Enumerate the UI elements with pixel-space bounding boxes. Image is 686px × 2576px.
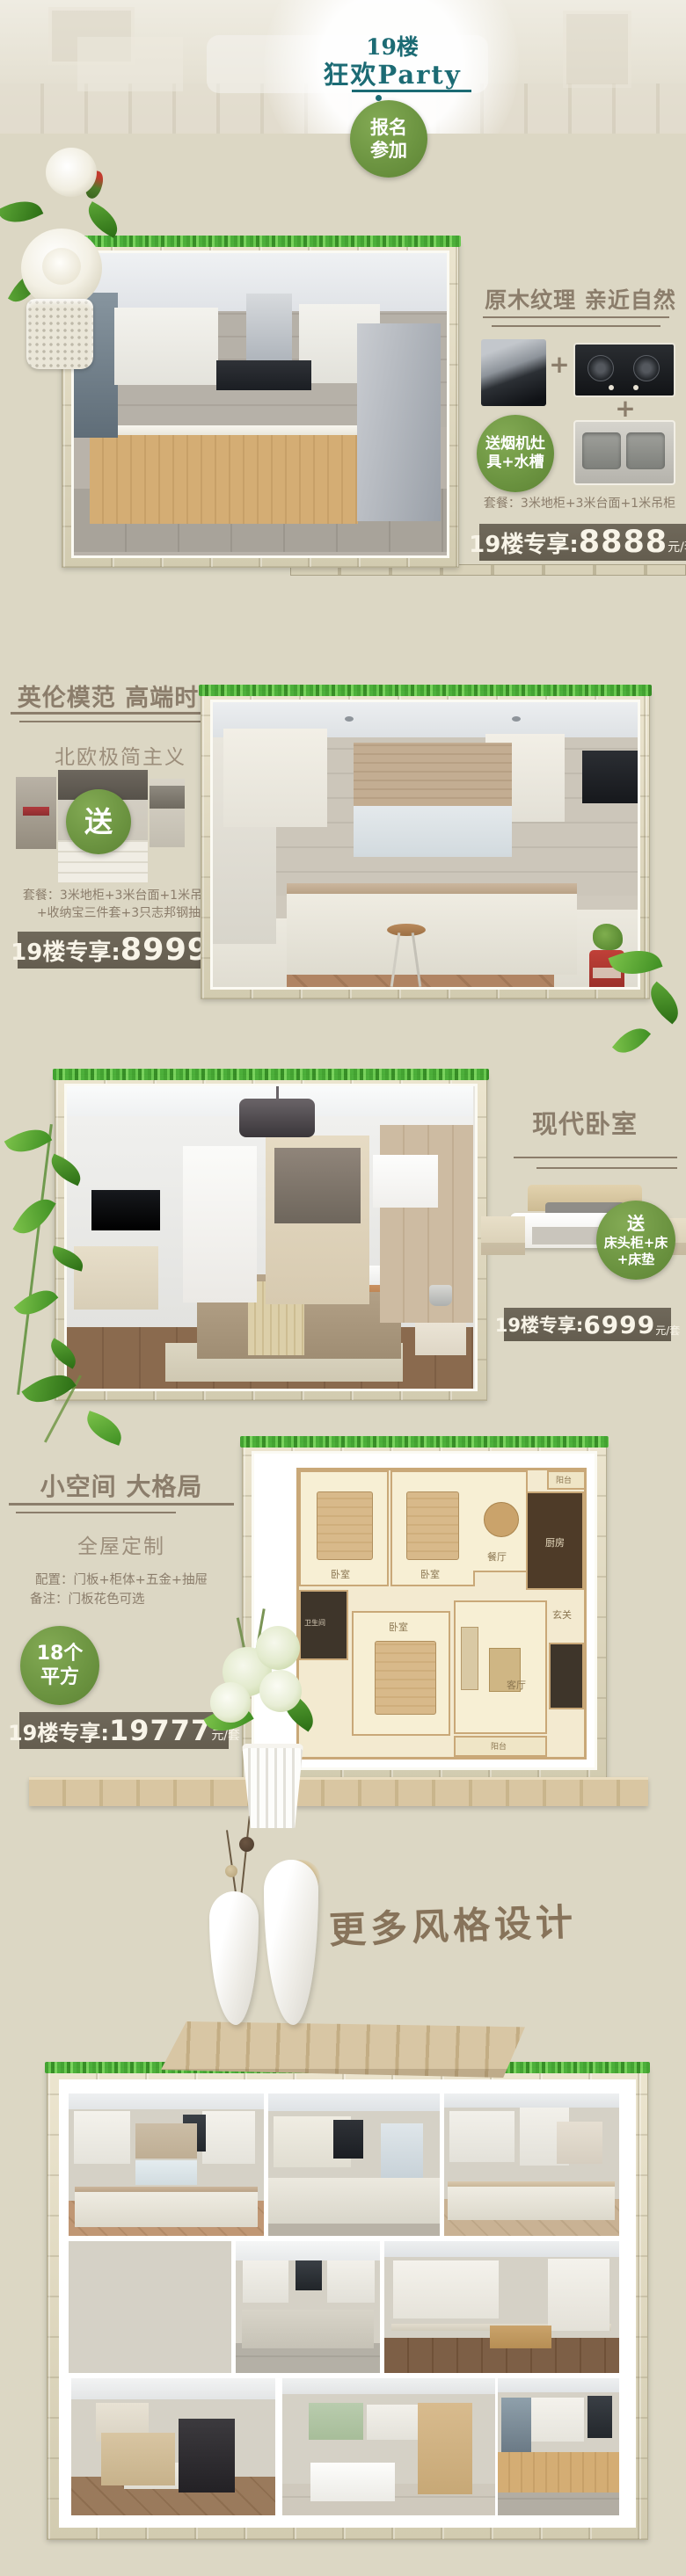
section4-underline-1 (9, 1503, 234, 1506)
header-divider-line (352, 90, 471, 92)
price-value: 8999 (120, 932, 209, 968)
section2-gift-char: 送 (84, 804, 113, 839)
section3-gift-line1: 送 (627, 1213, 645, 1235)
bedside-lamp (429, 1285, 452, 1306)
section3-title: 现代卧室 (491, 1104, 679, 1141)
vine-leaf-3 (612, 1020, 651, 1061)
ivy-leaf-1 (4, 1121, 53, 1162)
dried-seed-light (225, 1865, 237, 1877)
barrel-plant (593, 924, 623, 950)
section1-gift-line1: 送烟机灶 (485, 435, 545, 454)
section1-title: 原木纹理 亲近自然 (475, 283, 686, 315)
gallery-photo-1 (69, 2093, 264, 2236)
signup-button[interactable]: 报名 参加 (350, 100, 427, 178)
section1-price-bar: 19楼专享:8888元/套 (479, 524, 686, 561)
chandelier (239, 1099, 315, 1137)
hydrangea-bloom-2 (256, 1626, 300, 1670)
gallery-photo-5 (236, 2241, 380, 2373)
header-party-title: 狂欢Party (278, 54, 507, 91)
ceiling-spotlight-1 (345, 716, 354, 722)
gas-stove-image (573, 343, 675, 397)
price-label: 19楼专享: (469, 526, 579, 559)
white-vase-short (209, 1891, 259, 2025)
gallery-photo-4 (69, 2241, 231, 2373)
ivy-leaf-3 (12, 1191, 55, 1241)
wood-table-top (161, 2021, 525, 2078)
plan-dining: 餐厅 (473, 1470, 528, 1572)
gallery-photo-6 (384, 2241, 619, 2373)
gallery-photo-2 (268, 2093, 440, 2236)
header-cabinet (77, 37, 183, 91)
bedroom-photo (67, 1086, 475, 1389)
section2-gift-badge: 送 (66, 789, 131, 854)
section1-package-text: 套餐：3米地柜+3米台面+1米吊柜 (473, 494, 686, 512)
header-wall-frame-right (563, 11, 631, 88)
plan-bedroom-bottom: 卧室 (352, 1611, 450, 1736)
section4-area-badge: 18个 平方 (20, 1626, 99, 1705)
plan-bedroom-topmiddle: 卧室 (390, 1470, 475, 1586)
header-banner: 19楼 狂欢Party (0, 0, 686, 134)
price-label: 19楼专享: (11, 934, 120, 967)
section1-underline-1 (483, 316, 669, 318)
promo-page: 19楼 狂欢Party 报名 参加 原木纹理 亲近自然 + + (0, 0, 686, 2576)
signup-line2: 参加 (370, 139, 407, 162)
rose-lace-vase (26, 299, 93, 369)
plan-kitchen: 厨房 (526, 1491, 584, 1590)
section2-package-line2: +收纳宝三件套+3只志邦钢抽 (5, 903, 232, 921)
ceiling-spotlight-2 (512, 716, 521, 722)
section3-underline-1 (514, 1157, 677, 1158)
section2-underline-1 (11, 712, 230, 715)
gallery-photo-7 (71, 2378, 275, 2515)
section4-underline-2 (16, 1512, 176, 1513)
plan-living: 客厅 (454, 1600, 547, 1734)
section1-gift-badge: 送烟机灶 具+水槽 (477, 415, 554, 492)
range-hood-image (481, 339, 546, 406)
section3-underline-2 (536, 1167, 677, 1169)
signup-line1: 报名 (370, 116, 407, 139)
ivy-stem (17, 1124, 53, 1395)
hydrangea-bloom-4 (259, 1670, 302, 1712)
bar-stool (387, 924, 426, 936)
bedroom-frame (55, 1074, 487, 1401)
section4-config-text: 配置：门板+柜体+五金+抽屉 (5, 1570, 237, 1588)
gallery-photo-9 (498, 2378, 619, 2515)
section2-thumbnail-3 (150, 779, 185, 847)
plus-sign-2: + (614, 394, 637, 423)
section2-price-bar: 19楼专享:8999元/套 (18, 932, 231, 969)
plus-sign-1: + (548, 350, 571, 379)
section3-price-bar: 19楼专享:6999元/套 (504, 1308, 671, 1341)
plan-bathroom-2 (549, 1643, 584, 1709)
price-unit: 元/套 (668, 538, 686, 555)
gallery-photo-8 (282, 2378, 495, 2515)
wood-shelf (29, 1777, 648, 1806)
plan-balcony-top: 阳台 (547, 1470, 586, 1490)
section3-gift-line3: +床垫 (617, 1252, 655, 1268)
area-badge-line2: 平方 (40, 1665, 79, 1690)
section3-gift-badge: 送 床头柜+床 +床垫 (596, 1201, 675, 1280)
section1-underline-2 (492, 325, 660, 327)
kitchen2-photo (213, 702, 638, 987)
dried-stem-1 (226, 1830, 237, 1893)
section4-title: 小空间 大格局 (7, 1468, 236, 1503)
price-value: 8888 (579, 525, 668, 560)
price-label: 19楼专享: (8, 1716, 109, 1746)
kitchen2-frame (201, 690, 650, 999)
ivy-leaf-5 (14, 1281, 59, 1324)
gallery-frame (47, 2067, 648, 2540)
area-badge-line1: 18个 (37, 1642, 84, 1666)
section3-gift-line2: 床头柜+床 (604, 1235, 668, 1252)
section2-thumbnail-1 (16, 777, 56, 849)
rose-flower-small (46, 148, 97, 197)
hydrangea-bloom-3 (210, 1682, 251, 1723)
more-styles-title: 更多风格设计 (307, 1891, 599, 1955)
price-value: 6999 (583, 1310, 655, 1339)
hydrangea-decoration (207, 1601, 321, 1832)
section1-gift-line2: 具+水槽 (486, 454, 544, 472)
price-value: 19777 (109, 1714, 211, 1747)
stove-burner-right (633, 355, 660, 381)
section4-subtitle: 全屋定制 (7, 1529, 236, 1559)
price-unit: 元/套 (655, 1323, 680, 1338)
rose-leaf-2 (82, 201, 124, 238)
section4-leaf-2 (82, 1411, 127, 1446)
gallery-photo-3 (444, 2093, 619, 2236)
hydrangea-pot (242, 1744, 303, 1828)
plan-balcony-bottom: 阳台 (454, 1736, 547, 1757)
nightstand-left (481, 1216, 525, 1255)
plan-entry-label: 玄关 (552, 1607, 572, 1622)
floorplan-image: 卧室 卧室 餐厅 厨房 阳台 卫生间 (296, 1468, 587, 1760)
rose-leaf-1 (0, 192, 43, 230)
stove-burner-left (587, 355, 614, 381)
white-vase-tall (264, 1860, 318, 2025)
section2-underline-2 (19, 721, 218, 722)
section4-note-text: 备注：门板花色可选 (5, 1589, 237, 1607)
plan-bedroom-topleft: 卧室 (299, 1470, 389, 1586)
rose-flower-large (21, 229, 102, 308)
sink-image (573, 420, 675, 485)
section2-package-line1: 套餐：3米地柜+3米台面+1米吊柜 (5, 886, 232, 903)
price-label: 19楼专享: (495, 1311, 584, 1338)
rose-bouquet-decoration (0, 148, 130, 369)
dried-seed-dark (239, 1837, 254, 1852)
section4-price-bar: 19楼专享:19777元/套 (19, 1712, 229, 1749)
